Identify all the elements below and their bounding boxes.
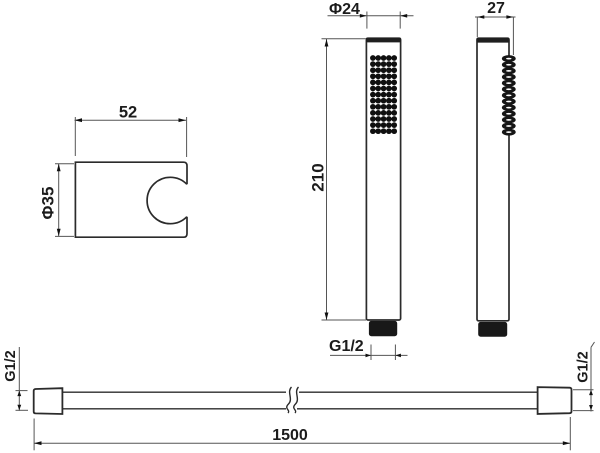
- svg-text:G1/2: G1/2: [329, 338, 364, 355]
- svg-text:1500: 1500: [272, 427, 308, 444]
- svg-text:210: 210: [309, 163, 328, 191]
- svg-text:G1/2: G1/2: [3, 350, 19, 381]
- svg-text:27: 27: [487, 0, 505, 17]
- svg-text:G1/2: G1/2: [576, 351, 592, 382]
- svg-text:52: 52: [119, 104, 137, 122]
- svg-text:Φ35: Φ35: [39, 187, 58, 220]
- svg-text:Φ24: Φ24: [329, 1, 360, 18]
